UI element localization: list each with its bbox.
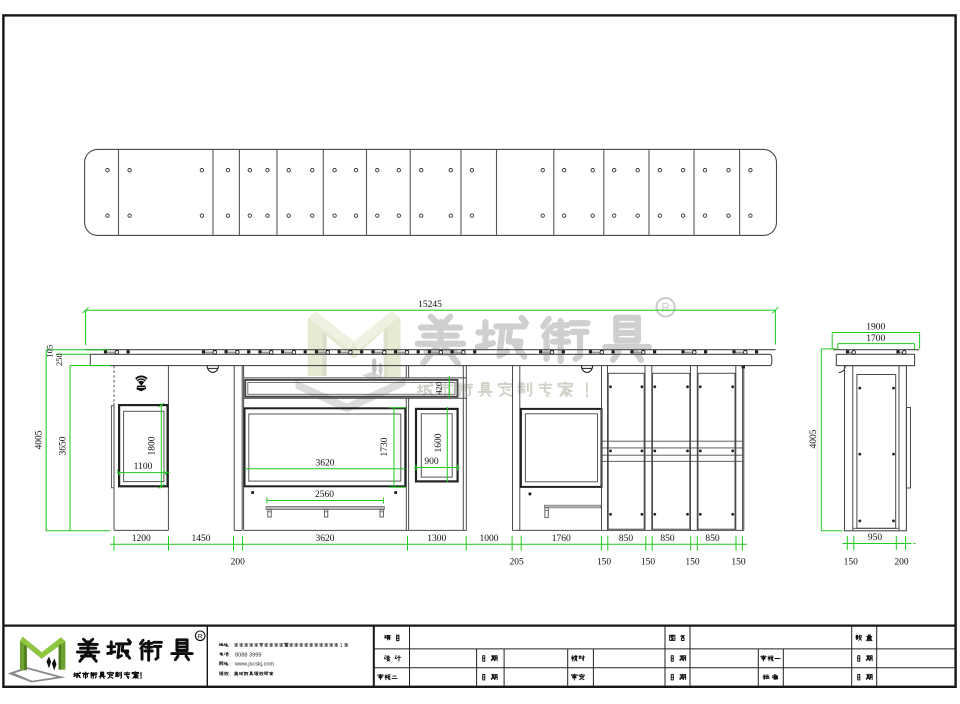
svg-text:1100: 1100: [134, 462, 153, 472]
svg-text:200: 200: [894, 558, 909, 568]
svg-text:850: 850: [705, 534, 720, 544]
svg-text::: :: [229, 653, 230, 658]
svg-text:1730: 1730: [380, 437, 390, 456]
svg-text:1000: 1000: [480, 534, 499, 544]
svg-text:R: R: [198, 634, 203, 641]
svg-text:15245: 15245: [418, 300, 442, 310]
svg-text:105: 105: [44, 345, 54, 358]
svg-text:850: 850: [619, 534, 634, 544]
svg-text:1450: 1450: [192, 534, 211, 544]
svg-text:1760: 1760: [552, 534, 571, 544]
svg-text:1600: 1600: [434, 433, 444, 452]
svg-text:150: 150: [685, 558, 700, 568]
svg-text:150: 150: [731, 558, 746, 568]
svg-text:850: 850: [660, 534, 675, 544]
svg-text:150: 150: [844, 558, 859, 568]
svg-text:1200: 1200: [132, 534, 151, 544]
svg-text::: :: [229, 644, 230, 649]
svg-text:420: 420: [434, 382, 444, 395]
svg-text:3620: 3620: [316, 534, 335, 544]
svg-text:1800: 1800: [148, 436, 158, 455]
svg-text:2560: 2560: [315, 490, 334, 500]
svg-text:1700: 1700: [866, 334, 885, 344]
svg-text:1900: 1900: [866, 322, 885, 332]
svg-text:900: 900: [424, 457, 439, 467]
svg-text:3620: 3620: [316, 458, 335, 468]
svg-text:205: 205: [509, 558, 524, 568]
svg-text:150: 150: [597, 558, 612, 568]
svg-text:8088 3999: 8088 3999: [235, 653, 261, 659]
svg-text:1: 1: [340, 643, 343, 649]
svg-text::: :: [229, 663, 230, 668]
svg-text:4005: 4005: [35, 430, 45, 449]
svg-text::: :: [229, 673, 230, 678]
svg-text:1300: 1300: [427, 534, 446, 544]
svg-text:www.jscskj.com: www.jscskj.com: [234, 662, 274, 668]
svg-text:950: 950: [868, 533, 883, 543]
svg-text:4005: 4005: [809, 429, 819, 448]
svg-text:R: R: [661, 303, 669, 315]
svg-text:150: 150: [641, 558, 656, 568]
svg-text:3650: 3650: [58, 436, 68, 455]
svg-text:250: 250: [54, 353, 64, 366]
svg-text:200: 200: [231, 558, 246, 568]
